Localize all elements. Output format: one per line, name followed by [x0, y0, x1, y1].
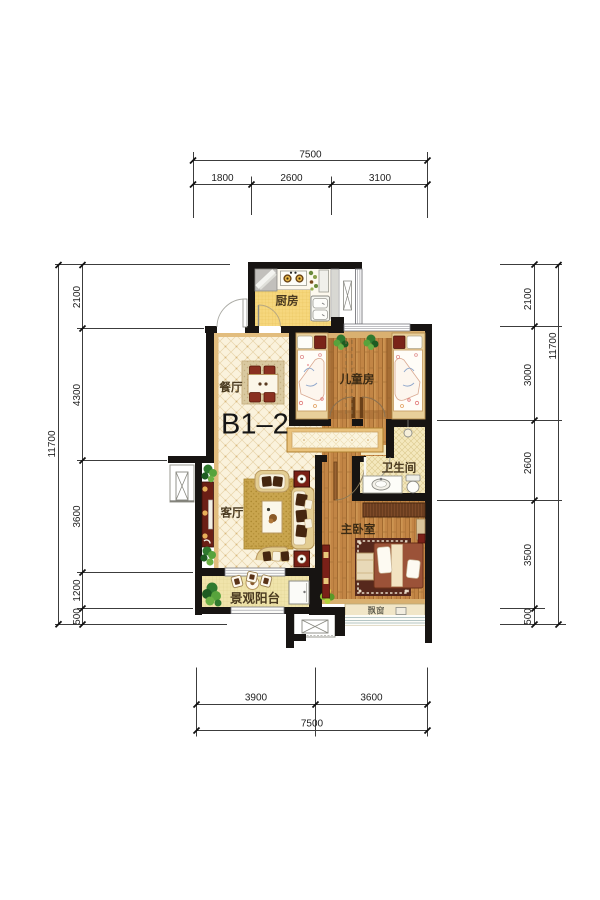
- svg-text:卫生间: 卫生间: [382, 461, 417, 475]
- svg-text:3600: 3600: [360, 693, 383, 704]
- svg-text:厨房: 厨房: [276, 294, 299, 308]
- svg-text:7500: 7500: [301, 719, 324, 730]
- svg-text:7500: 7500: [299, 150, 322, 161]
- svg-text:500: 500: [72, 608, 83, 625]
- svg-text:500: 500: [523, 608, 534, 625]
- svg-text:主卧室: 主卧室: [341, 522, 376, 536]
- svg-text:2600: 2600: [280, 173, 303, 184]
- svg-text:B1–2: B1–2: [221, 409, 289, 441]
- svg-text:11700: 11700: [548, 332, 559, 360]
- svg-text:3100: 3100: [369, 173, 392, 184]
- svg-text:3600: 3600: [72, 505, 83, 528]
- svg-text:儿童房: 儿童房: [339, 372, 375, 386]
- svg-text:客厅: 客厅: [220, 506, 244, 520]
- svg-text:11700: 11700: [47, 430, 58, 458]
- svg-text:飘窗: 飘窗: [367, 606, 384, 616]
- svg-text:餐厅: 餐厅: [219, 380, 243, 394]
- svg-text:2600: 2600: [523, 451, 534, 474]
- svg-text:景观阳台: 景观阳台: [230, 591, 280, 606]
- svg-text:3900: 3900: [245, 693, 268, 704]
- svg-text:3000: 3000: [523, 363, 534, 386]
- svg-text:2100: 2100: [72, 285, 83, 308]
- svg-text:2100: 2100: [523, 287, 534, 310]
- svg-text:3500: 3500: [523, 543, 534, 566]
- svg-text:1800: 1800: [211, 173, 234, 184]
- svg-text:4300: 4300: [72, 383, 83, 406]
- svg-text:1200: 1200: [72, 579, 83, 602]
